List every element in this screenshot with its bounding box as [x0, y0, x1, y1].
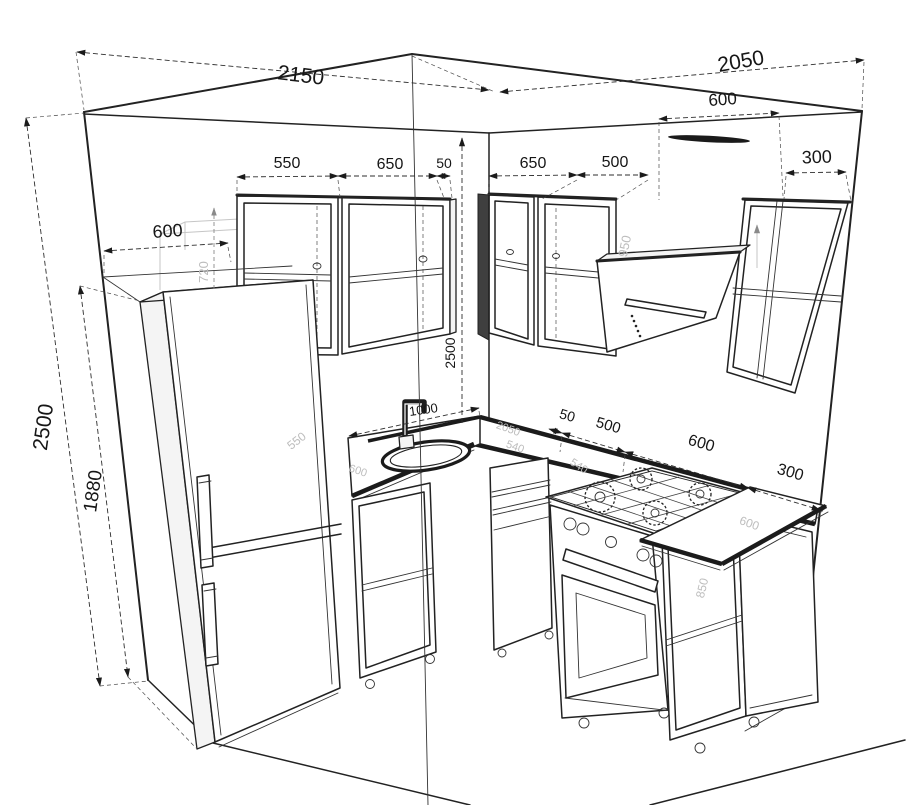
adjustable-foot — [545, 631, 553, 639]
dim-wall-right-label: 2050 — [716, 46, 766, 77]
kitchen-plan-canvas: 2150 2050 600 550 650 50 650 500 300 600… — [0, 0, 909, 805]
dim-upper-650-left-label: 650 — [377, 156, 404, 173]
dim-upper-500-label: 500 — [602, 154, 629, 171]
ceiling-edge-left — [84, 54, 412, 112]
cabinet-side-panel — [450, 199, 456, 334]
base-cabinet-300 — [640, 487, 828, 753]
dim-upper-650-right-label: 650 — [520, 155, 547, 172]
dim-hood-clearance-label: 600 — [708, 89, 738, 110]
dim-wall-left-label: 2150 — [276, 61, 325, 90]
dim-upper-50-label: 50 — [436, 155, 452, 171]
adjustable-foot — [695, 743, 705, 753]
fridge — [103, 266, 341, 749]
tall-cabinet-300 — [727, 199, 850, 393]
dim-fridge-width-label: 600 — [152, 220, 183, 242]
dim-sink-offset-label: 1000 — [408, 400, 439, 419]
wall-cabinet-650-right — [489, 195, 534, 345]
adjustable-foot — [426, 655, 435, 664]
dim-upper-300-label: 300 — [801, 146, 832, 167]
range-hood — [597, 245, 750, 352]
wall-edge-left — [84, 112, 148, 680]
dim-upper-550-label: 550 — [274, 155, 301, 172]
ceiling-light-bar — [668, 134, 750, 145]
adjustable-foot — [366, 680, 375, 689]
dim-base-50-label: 50 — [558, 405, 578, 425]
dim-base-600-label: 600 — [686, 432, 716, 456]
dim-base-500-label: 500 — [594, 414, 623, 437]
wall-top-inner-right — [489, 112, 862, 133]
floor-edge-right — [650, 740, 905, 805]
adjustable-foot — [579, 718, 589, 728]
dim-fridge-height-label: 1880 — [80, 469, 107, 514]
ceiling-edge-right — [412, 54, 862, 111]
dim-corner-height-label: 2500 — [442, 337, 458, 368]
wall-cabinet-650-left — [342, 197, 456, 354]
corner-side-panel — [478, 194, 489, 340]
dim-room-height-label: 2500 — [29, 402, 58, 451]
adjustable-foot — [498, 649, 506, 657]
ghost-upper-height-label: 720 — [196, 261, 211, 283]
kitchen-drawing: 2150 2050 600 550 650 50 650 500 300 600… — [0, 0, 909, 805]
drawer-cabinet-500 — [490, 458, 553, 657]
dim-base-300-label: 300 — [775, 461, 805, 485]
wall-top-inner-left — [84, 114, 489, 133]
